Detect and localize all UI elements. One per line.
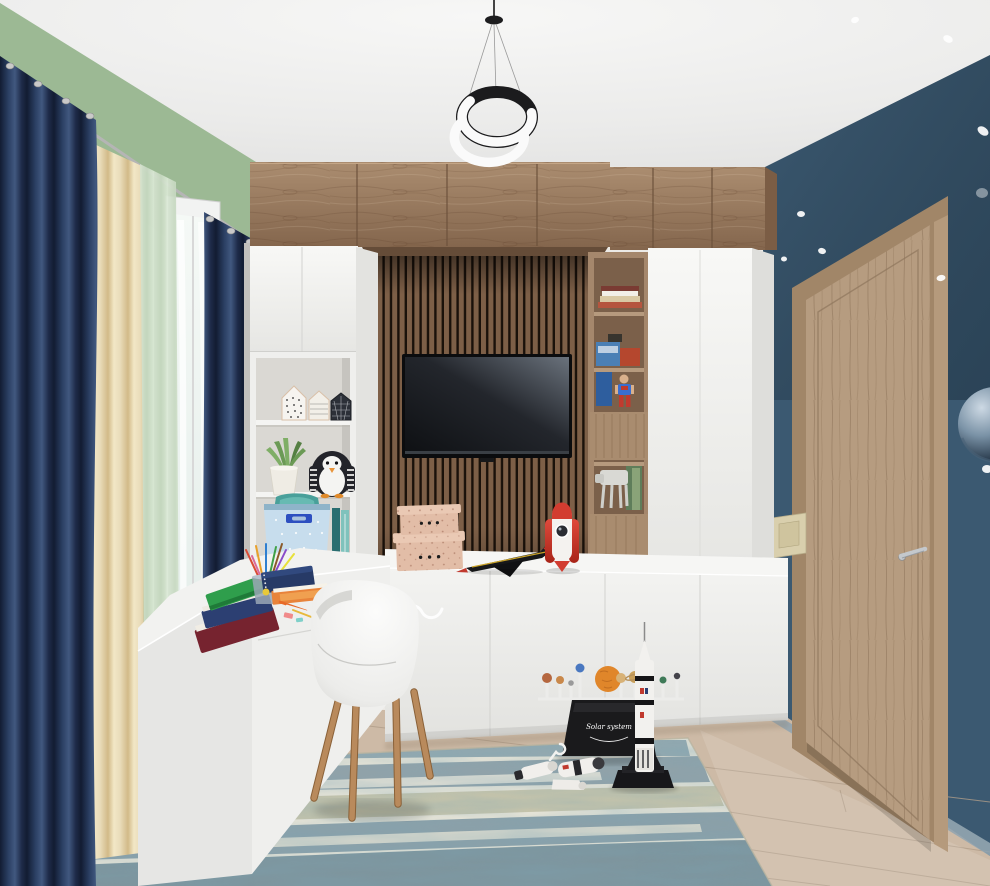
shelf-drawer [590, 412, 648, 460]
plant-pot [270, 468, 298, 495]
solar-system-label: Solar system [586, 723, 632, 731]
door-frame-right-edge [934, 215, 948, 852]
tv-mount [480, 458, 494, 462]
white-cabinet-column [244, 243, 358, 576]
wood-open-shelf-column [588, 252, 650, 567]
unit-inner-return [356, 247, 378, 575]
chair-shadow [314, 800, 430, 820]
door-assembly [792, 196, 948, 852]
white-cabinet-doors [250, 246, 358, 353]
curtain-navy-left [0, 56, 98, 886]
upper-wood-cabinets-right [610, 167, 777, 250]
room-render: Solar system [0, 0, 990, 886]
tv-screen [405, 357, 569, 454]
light-switch [772, 513, 806, 558]
switch-rocker [779, 521, 799, 548]
cabinet-side-strip [244, 243, 250, 576]
upper-wood-cabinets-left [250, 162, 610, 247]
door-grain [806, 225, 930, 840]
chair-shell [311, 580, 419, 707]
shelf-book-stack [598, 286, 642, 308]
scene-canvas: Solar system [0, 0, 990, 886]
cork-boxes [392, 504, 466, 571]
yellow-ball [263, 589, 270, 596]
lamp-canopy [485, 16, 503, 25]
wall-mounted-tv [402, 354, 572, 462]
tall-white-cabinet [648, 248, 774, 566]
